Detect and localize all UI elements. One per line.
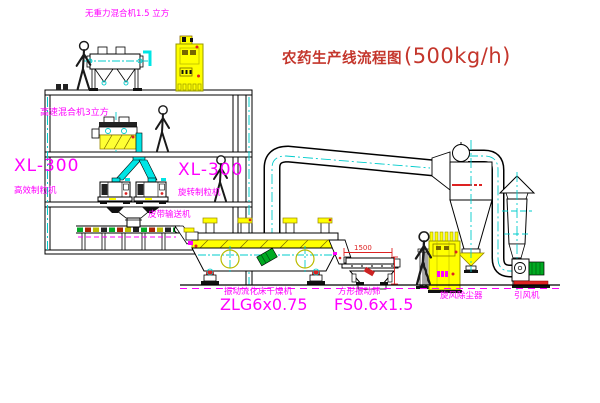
label-gravity-mixer: 无重力混合机1.5 立方 bbox=[85, 10, 169, 19]
exhaust-duct-drawing bbox=[272, 152, 450, 238]
dryer-drawing bbox=[184, 218, 338, 285]
label-high-speed-mixer: 高速混合机3立方 bbox=[40, 109, 109, 118]
label-granulator-right-model: XL-300 bbox=[178, 162, 243, 179]
label-granulator-left-model: XL-300 bbox=[14, 158, 79, 175]
high-speed-mixer-drawing bbox=[92, 112, 142, 152]
dimension-sieve-width: 1500 bbox=[354, 244, 372, 252]
granulator-right-drawing bbox=[134, 178, 168, 204]
bucket-elevator-1-drawing bbox=[176, 36, 203, 91]
process-flow-diagram: 农药生产线流程图 (500kg/h) 无重力混合机1.5 立方 高速混合机3立方… bbox=[0, 0, 600, 403]
label-cyclone: 旋风除尘器 bbox=[440, 292, 483, 301]
belt-conveyor-drawing bbox=[76, 226, 195, 250]
title-capacity: (500kg/h) bbox=[404, 44, 511, 68]
label-dryer-model: ZLG6x0.75 bbox=[220, 297, 308, 313]
granulator-left-drawing bbox=[98, 178, 132, 204]
diagram-title: 农药生产线流程图 (500kg/h) bbox=[282, 44, 511, 68]
worker-figure-floor2 bbox=[156, 106, 169, 151]
gravity-mixer-drawing bbox=[56, 47, 150, 91]
label-fan: 引风机 bbox=[514, 292, 540, 301]
label-belt-conveyor: 皮带输送机 bbox=[148, 211, 191, 220]
y-chute-drawing bbox=[115, 157, 157, 180]
fan-drawing bbox=[512, 259, 550, 288]
label-granulator-right-name: 旋转制粒机 bbox=[178, 189, 221, 198]
title-text: 农药生产线流程图 bbox=[282, 47, 402, 68]
label-sieve-model: FS0.6x1.5 bbox=[334, 297, 413, 313]
label-granulator-left-name: 高效制粒机 bbox=[14, 187, 57, 196]
